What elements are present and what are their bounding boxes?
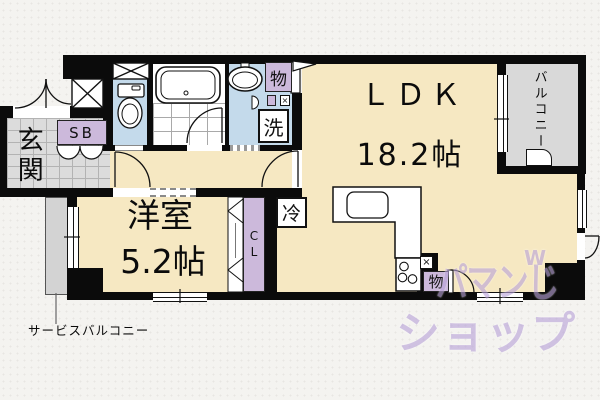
balcony-step xyxy=(526,149,552,166)
balcony-label: バルコニー xyxy=(532,70,546,150)
right-exterior-door-swing xyxy=(585,236,599,258)
closet-label: CL xyxy=(247,229,261,261)
toilet xyxy=(118,84,144,128)
closet-box: CL xyxy=(243,197,265,292)
storage-bottom-label: 物 xyxy=(428,271,443,292)
fridge-label: 冷 xyxy=(282,199,301,226)
shoe-box: SB xyxy=(57,120,107,145)
service-balcony-label: サービスバルコニー xyxy=(28,324,149,337)
bathtub xyxy=(156,67,220,103)
floor-plan: SB 物 物 CL 冷 洗 × × ＬＤＫ 18.2帖 洋室 5.2帖 玄関 バ… xyxy=(0,0,600,400)
storage-top-box: 物 xyxy=(265,62,292,92)
washer-box: 洗 xyxy=(258,109,289,143)
western-room-door-swing xyxy=(115,152,150,187)
upper-storage-door xyxy=(291,61,316,93)
storage-bottom-box: 物 xyxy=(423,271,449,292)
entrance-closet-doors xyxy=(57,145,103,159)
ldk-label: ＬＤＫ xyxy=(338,80,488,112)
storage-top-label: 物 xyxy=(270,65,287,90)
western-room-size-label: 5.2帖 xyxy=(102,245,224,280)
washroom-fixture xyxy=(252,96,259,109)
storage-door-swing xyxy=(448,270,474,293)
x-glyph: × xyxy=(422,257,430,268)
bathroom-door-swing xyxy=(187,108,222,143)
shoe-box-label: SB xyxy=(69,124,95,142)
shaft-x-box xyxy=(72,79,103,108)
entrance-label: 玄関 xyxy=(14,126,41,186)
ldk-size-label: 18.2帖 xyxy=(330,140,490,172)
stove xyxy=(396,258,421,291)
washroom-mini-box xyxy=(267,95,276,106)
ldk-door-swing xyxy=(262,151,298,187)
shaft-x-box-top xyxy=(113,63,149,79)
fridge-box: 冷 xyxy=(276,197,307,228)
kitchen-counter xyxy=(333,187,421,258)
front-door-swing xyxy=(15,79,71,108)
closet-bifold-doors xyxy=(228,197,243,292)
kitchen-x-box: × xyxy=(420,256,433,269)
western-room-label: 洋室 xyxy=(110,199,210,234)
washbasin xyxy=(228,63,262,91)
washer-label: 洗 xyxy=(264,112,284,141)
washroom-x-box: × xyxy=(280,95,290,106)
x-glyph: × xyxy=(282,96,289,105)
